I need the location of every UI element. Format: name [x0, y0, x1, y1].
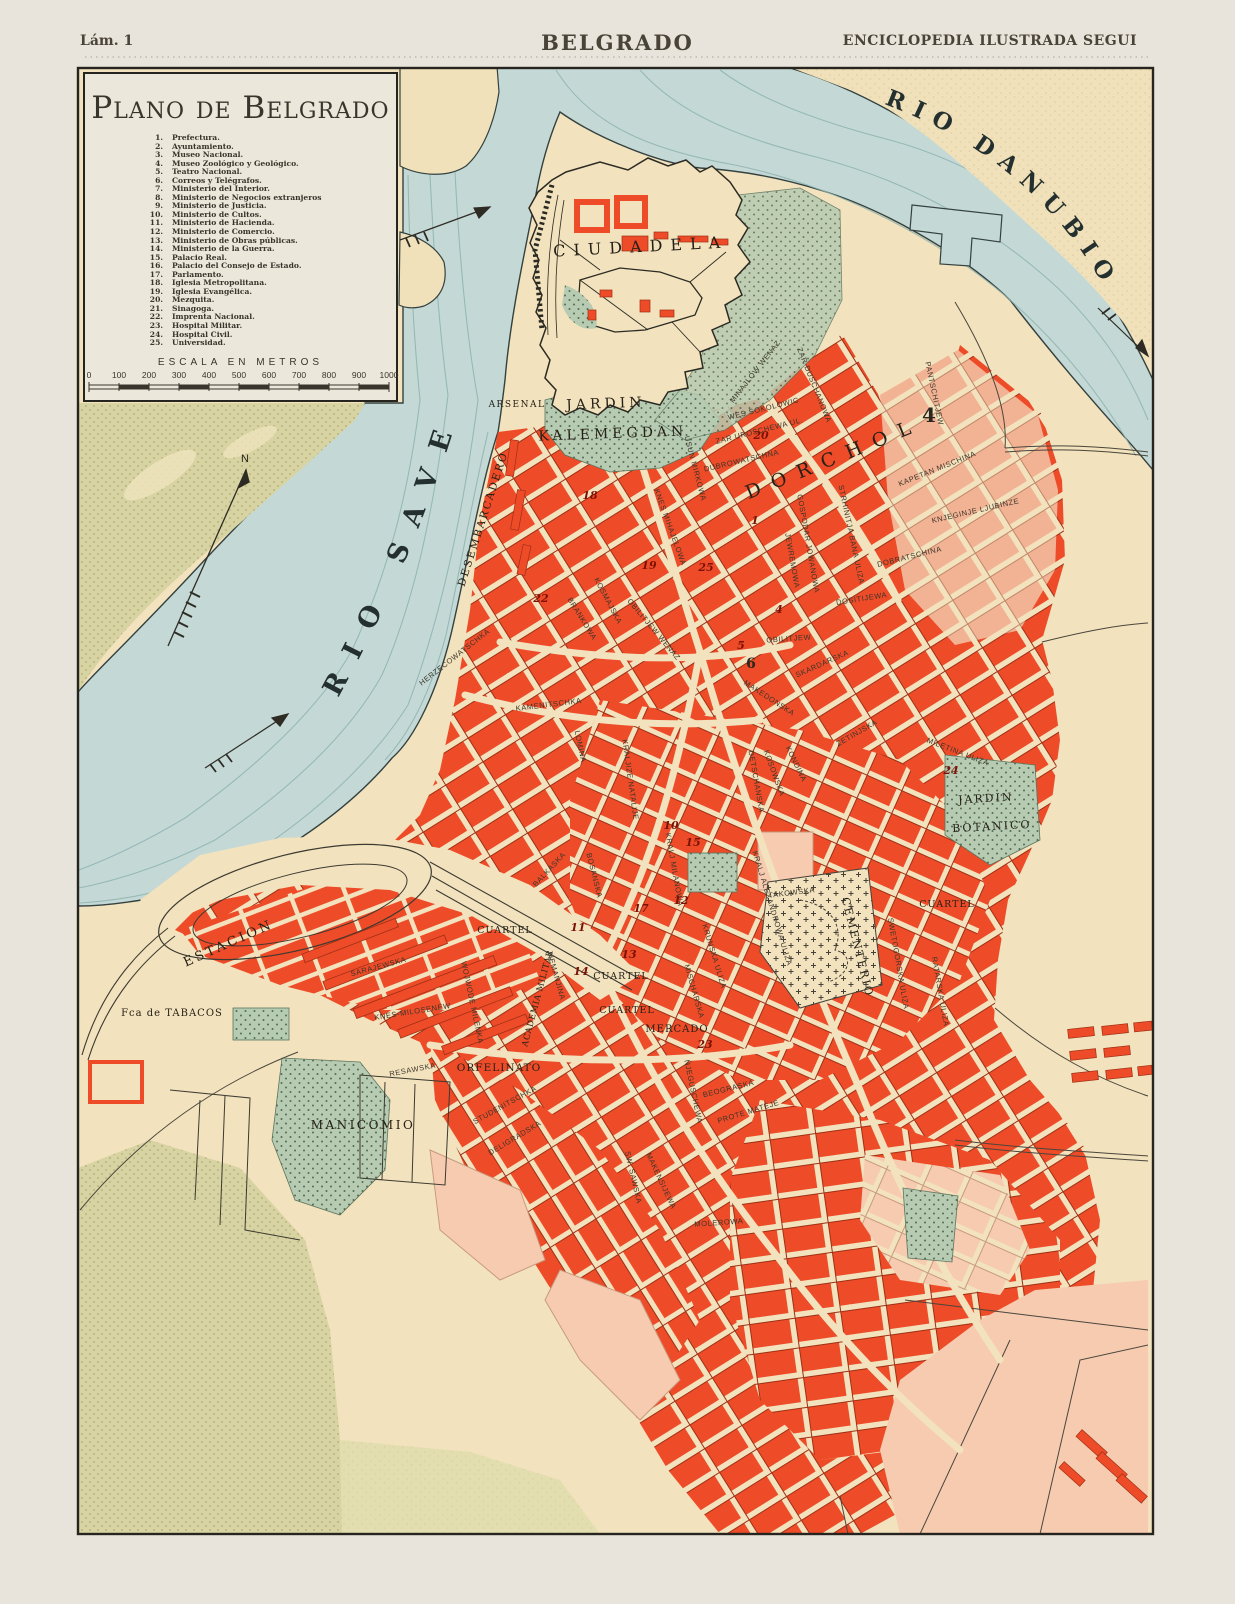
place-label-orfelinato: ORFELINATO: [457, 1062, 541, 1074]
place-label-jardin: JARDIN: [564, 395, 646, 414]
legend-panel: Plano de Belgrado 1.Prefectura.2.Ayuntam…: [83, 72, 398, 402]
legend-item-20: 20.Mezquita.: [123, 296, 396, 305]
place-label-cuartel: CUARTEL: [599, 1005, 654, 1016]
poi-marker-5-741: 5: [737, 639, 745, 652]
legend-item-14: 14.Ministerio de la Guerra.: [123, 245, 396, 254]
publisher: ENCICLOPEDIA ILUSTRADA SEGUI: [843, 33, 1137, 49]
legend-item-4: 4.Museo Zoológico y Geológico.: [123, 160, 396, 169]
poi-marker-23-705: 23: [696, 1038, 713, 1051]
poi-marker-20-761: 20: [752, 429, 769, 442]
poi-marker-1-755: 1: [751, 514, 759, 527]
legend-item-25: 25.Universidad.: [123, 339, 396, 348]
place-label-cuartel: CUARTEL: [919, 899, 974, 910]
poi-marker-4-929: 4: [922, 403, 936, 427]
poi-marker-12-681: 12: [673, 894, 689, 907]
legend-title: Plano de Belgrado: [85, 90, 396, 126]
place-label-cuartel: CUARTEL: [593, 971, 648, 982]
legend-item-2: 2.Ayuntamiento.: [123, 143, 396, 152]
place-label-mercado: MERCADO: [645, 1024, 708, 1035]
poi-marker-22-541: 22: [532, 592, 549, 605]
legend-item-24: 24.Hospital Civil.: [123, 331, 396, 340]
legend-item-18: 18.Iglesia Metropolitana.: [123, 279, 396, 288]
scale-bar: [85, 382, 396, 392]
poi-marker-13-629: 13: [621, 948, 637, 961]
scale-tick-200: 200: [142, 370, 156, 380]
poi-marker-17-641: 17: [633, 902, 649, 915]
scale-title: ESCALA EN METROS: [85, 357, 396, 368]
scale-tick-700: 700: [292, 370, 306, 380]
legend-item-1: 1.Prefectura.: [123, 134, 396, 143]
poi-marker-15-693: 15: [685, 836, 700, 849]
legend-items: 1.Prefectura.2.Ayuntamiento.3.Museo Naci…: [123, 134, 396, 348]
legend-item-21: 21.Sinagoga.: [123, 305, 396, 314]
scale-tick-900: 900: [352, 370, 366, 380]
scale-tick-1000: 1000: [380, 370, 399, 380]
poi-marker-11-578: 11: [570, 921, 585, 934]
compass-north-label: N: [241, 453, 249, 465]
scale-tick-600: 600: [262, 370, 276, 380]
scale-tick-labels: 01002003004005006007008009001000: [85, 370, 396, 381]
scale-tick-400: 400: [202, 370, 216, 380]
legend-item-19: 19.Iglesia Evangélica.: [123, 288, 396, 297]
place-label-fca-de-tabacos: Fca de TABACOS: [121, 1008, 223, 1019]
scale-tick-0: 0: [87, 370, 92, 380]
scale-tick-500: 500: [232, 370, 246, 380]
poi-marker-14-581: 14: [573, 965, 588, 978]
legend-item-23: 23.Hospital Militar.: [123, 322, 396, 331]
legend-item-22: 22.Imprenta Nacional.: [123, 313, 396, 322]
place-label-manicomio: MANICOMIO: [311, 1118, 416, 1132]
place-label-cuartel: CUARTEL: [477, 925, 532, 936]
scale-tick-300: 300: [172, 370, 186, 380]
scale-section: ESCALA EN METROS 01002003004005006007008…: [85, 357, 396, 392]
poi-marker-6-751: 6: [746, 656, 756, 672]
poi-marker-10-671: 10: [663, 819, 679, 832]
place-label-arsenal: ARSENAL: [488, 400, 546, 410]
scale-tick-800: 800: [322, 370, 336, 380]
poi-marker-18-590: 18: [582, 489, 598, 502]
legend-item-16: 16.Palacio del Consejo de Estado.: [123, 262, 396, 271]
poi-marker-4-779: 4: [775, 603, 783, 616]
scale-tick-100: 100: [112, 370, 126, 380]
poi-marker-24-951: 24: [942, 764, 958, 777]
poi-marker-19-649: 19: [641, 559, 657, 572]
poi-marker-25-706: 25: [697, 561, 713, 574]
